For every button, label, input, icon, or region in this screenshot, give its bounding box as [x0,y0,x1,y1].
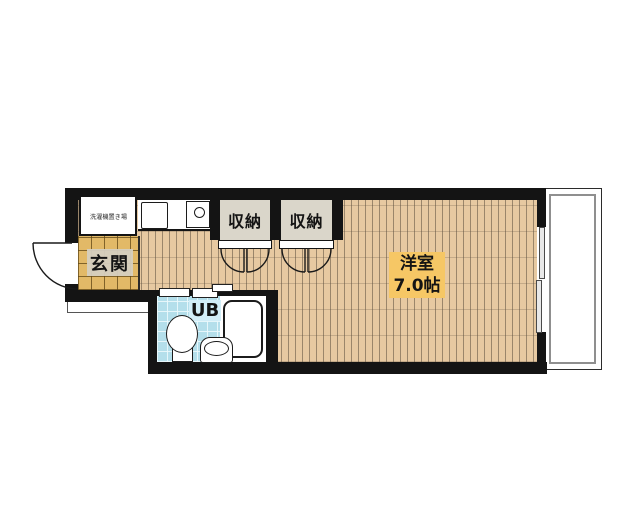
closet-left-track [218,240,272,249]
bath-door-panel-1 [159,288,190,297]
closet-right-label: 収納 [289,208,323,232]
wash-basin-bowl [204,341,229,356]
outside-mask [60,313,148,378]
main-room-label: 洋室 7.0帖 [389,252,445,298]
wall-entrance-bottom [65,290,150,302]
closet-right: 収納 [281,200,332,240]
main-room-name: 洋室 [400,253,434,275]
wall-bottom [148,362,547,374]
entrance-step [67,302,150,313]
closet-right-track [279,240,334,249]
laundry-box: 洗濯機置き場 [79,195,137,236]
kitchen-sink [141,202,168,229]
closet-left: 収納 [220,200,270,240]
stove-burner-icon [194,207,205,218]
window-pane-lower [536,280,542,333]
laundry-label: 洗濯機置き場 [89,211,126,221]
closet-left-label: 収納 [228,208,262,232]
wall-closet-divider [270,200,281,240]
wall-left-upper [65,188,78,243]
wall-right-upper [537,188,546,227]
entrance-label: 玄関 [87,249,133,276]
unit-bath-label-text: UB [191,300,219,321]
wall-right-lower [537,332,546,374]
entrance-label-text: 玄関 [90,250,130,276]
window-pane-upper [539,227,545,279]
floor-plan: 玄関 洗濯機置き場 収納 収納 UB 洋室 7.0帖 [0,0,640,512]
unit-bath-label: UB [189,300,221,321]
toilet-bowl [166,315,198,353]
wall-kitchen-closet-stub [210,200,220,240]
balcony-inner-line [549,194,596,364]
bath-door-panel-3 [212,284,233,292]
entrance-door-arc [33,243,78,289]
wall-top [65,188,546,200]
wall-closet-right-stub [332,200,343,240]
main-room-size: 7.0帖 [393,275,440,297]
